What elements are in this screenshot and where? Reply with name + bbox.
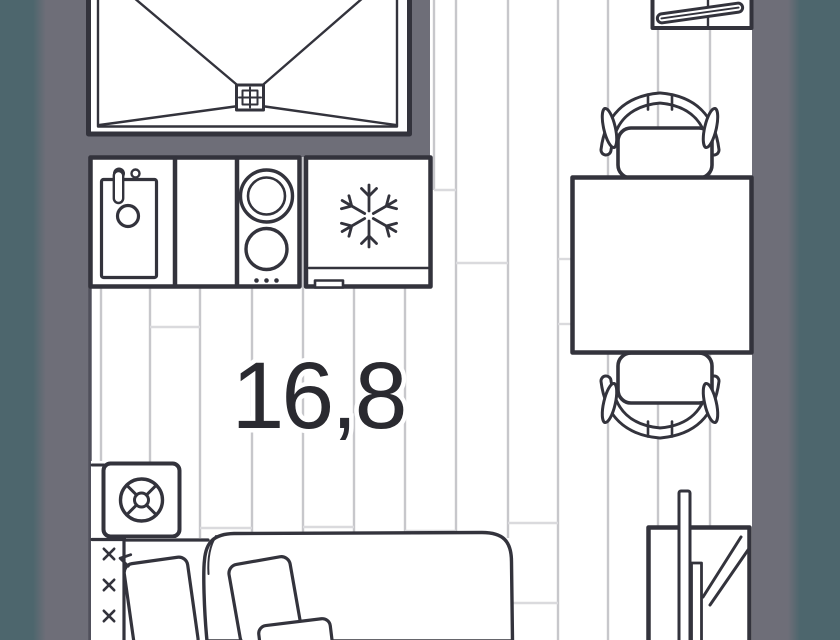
wardrobe-door-panel	[679, 491, 690, 640]
wardrobe-door-panel	[692, 563, 702, 640]
floor-plan-image: 16,8	[0, 0, 840, 640]
bed-icon	[120, 533, 513, 640]
floor-plan-drawing: 16,8	[0, 0, 840, 640]
faucet-icon	[114, 171, 123, 203]
hanger-rail-icon	[91, 538, 124, 640]
nightstand-fan-icon	[91, 461, 180, 539]
window-handle-icon	[237, 85, 264, 110]
dining-table-icon	[573, 178, 752, 353]
tv-stand-icon	[653, 0, 752, 28]
refrigerator-snowflake-icon	[306, 158, 431, 288]
window-icon	[89, 0, 410, 134]
room-area-label: 16,8	[232, 343, 405, 449]
drain-icon	[118, 206, 139, 227]
